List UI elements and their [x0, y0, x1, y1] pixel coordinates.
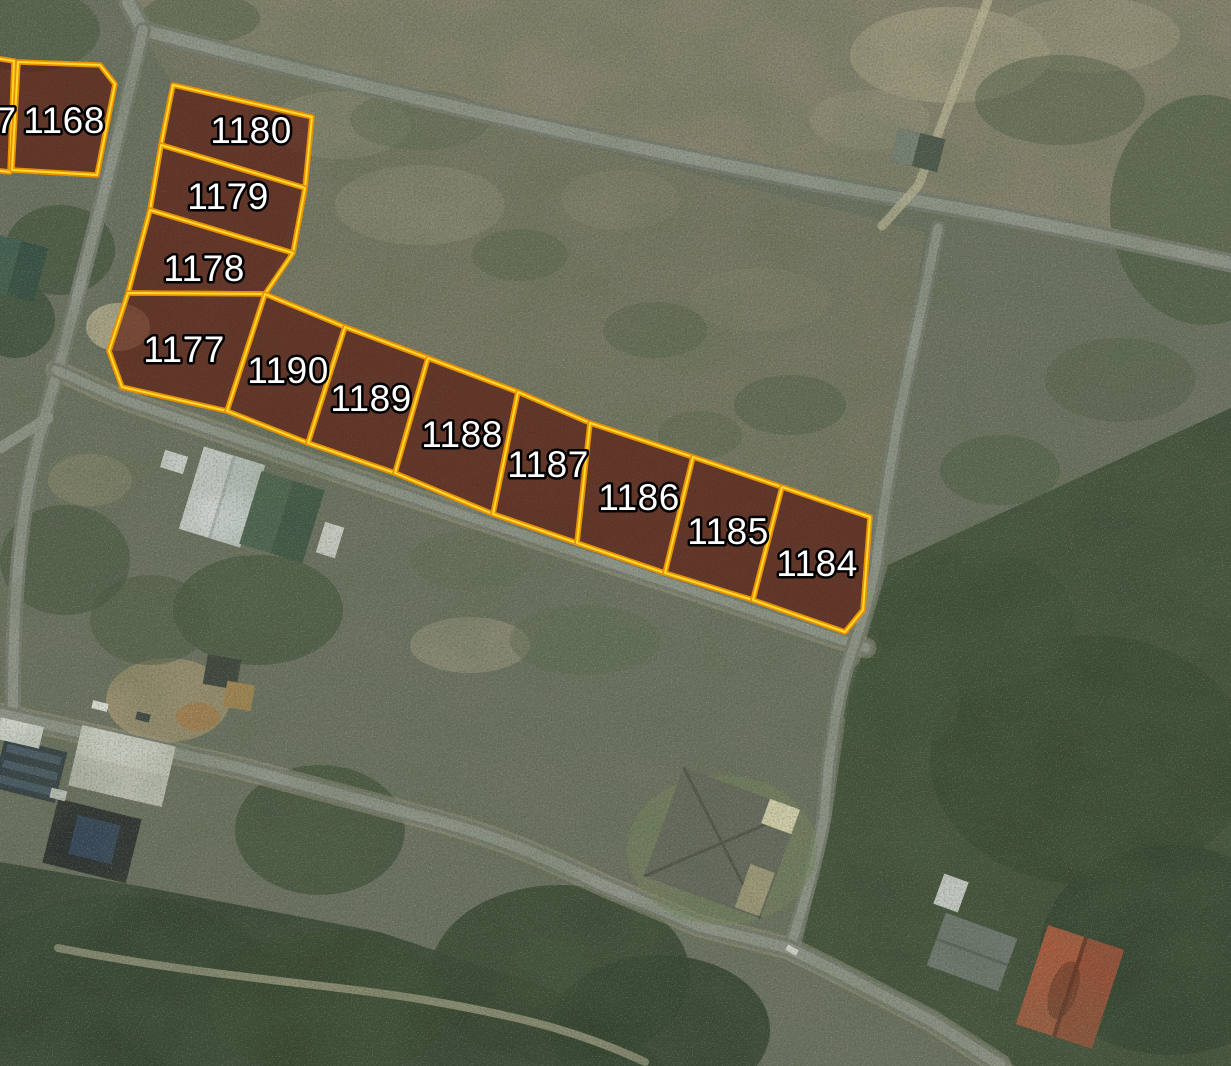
- plot-label-1186: 1186: [598, 477, 680, 518]
- plot-label-1178: 1178: [163, 248, 245, 289]
- plot-label-partial-7: 7: [0, 100, 17, 141]
- plot-label-1189: 1189: [330, 378, 412, 419]
- plot-label-1179: 1179: [187, 176, 269, 217]
- plot-label-1177: 1177: [143, 329, 225, 370]
- satellite-map[interactable]: 7 1168 1180 1179 1178 1177 1190 1189 118…: [0, 0, 1231, 1066]
- plot-label-1185: 1185: [687, 511, 769, 552]
- plot-label-1187: 1187: [507, 444, 589, 485]
- plot-label-1184: 1184: [776, 543, 858, 584]
- plot-label-1180: 1180: [210, 110, 292, 151]
- plot-label-1168: 1168: [23, 100, 105, 141]
- plot-label-1190: 1190: [247, 350, 329, 391]
- plot-label-1188: 1188: [421, 414, 503, 455]
